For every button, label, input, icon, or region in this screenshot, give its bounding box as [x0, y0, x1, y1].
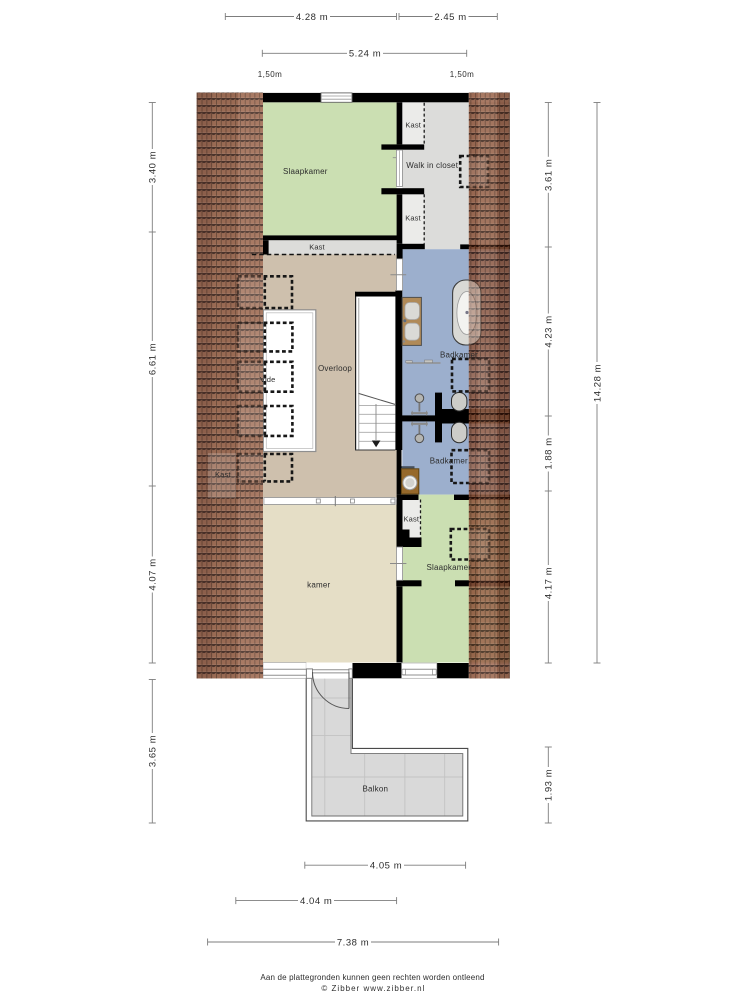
svg-text:Kast: Kast	[309, 243, 325, 252]
svg-text:Aan de plattegronden kunnen ge: Aan de plattegronden kunnen geen rechten…	[260, 973, 484, 982]
svg-text:Badkamer: Badkamer	[430, 457, 468, 466]
svg-text:6.61 m: 6.61 m	[148, 343, 159, 375]
svg-text:kamer: kamer	[307, 581, 330, 590]
svg-text:4.05 m: 4.05 m	[370, 861, 402, 872]
svg-text:3.40 m: 3.40 m	[148, 151, 159, 183]
svg-text:© Zibber www.zibber.nl: © Zibber www.zibber.nl	[321, 984, 425, 993]
svg-text:Walk in closet: Walk in closet	[406, 161, 458, 170]
svg-text:7.38 m: 7.38 m	[337, 937, 369, 948]
svg-text:4.23 m: 4.23 m	[544, 315, 555, 347]
svg-text:1.88 m: 1.88 m	[544, 437, 555, 469]
svg-text:5.24 m: 5.24 m	[349, 49, 381, 60]
svg-text:1,50m: 1,50m	[450, 70, 474, 79]
svg-text:3.65 m: 3.65 m	[148, 735, 159, 767]
svg-text:4.07 m: 4.07 m	[148, 558, 159, 590]
svg-text:4.28 m: 4.28 m	[296, 12, 328, 23]
svg-text:Overloop: Overloop	[318, 364, 352, 373]
svg-text:4.04 m: 4.04 m	[300, 896, 332, 907]
svg-text:Vide: Vide	[260, 375, 275, 384]
svg-text:Kast: Kast	[405, 121, 421, 130]
svg-text:2.45 m: 2.45 m	[434, 12, 466, 23]
svg-text:Slaapkamer: Slaapkamer	[283, 167, 328, 176]
svg-text:4.17 m: 4.17 m	[544, 567, 555, 599]
svg-text:Slaapkamer: Slaapkamer	[426, 563, 471, 572]
svg-text:3.61 m: 3.61 m	[544, 159, 555, 191]
svg-text:1,50m: 1,50m	[258, 70, 282, 79]
svg-text:Badkamer: Badkamer	[440, 351, 478, 360]
svg-text:Kast: Kast	[215, 470, 231, 479]
svg-text:Balkon: Balkon	[362, 785, 388, 794]
svg-text:Kast: Kast	[405, 214, 421, 223]
svg-text:14.28 m: 14.28 m	[592, 364, 603, 402]
svg-text:Kast: Kast	[403, 515, 419, 524]
svg-text:1.93 m: 1.93 m	[544, 769, 555, 801]
